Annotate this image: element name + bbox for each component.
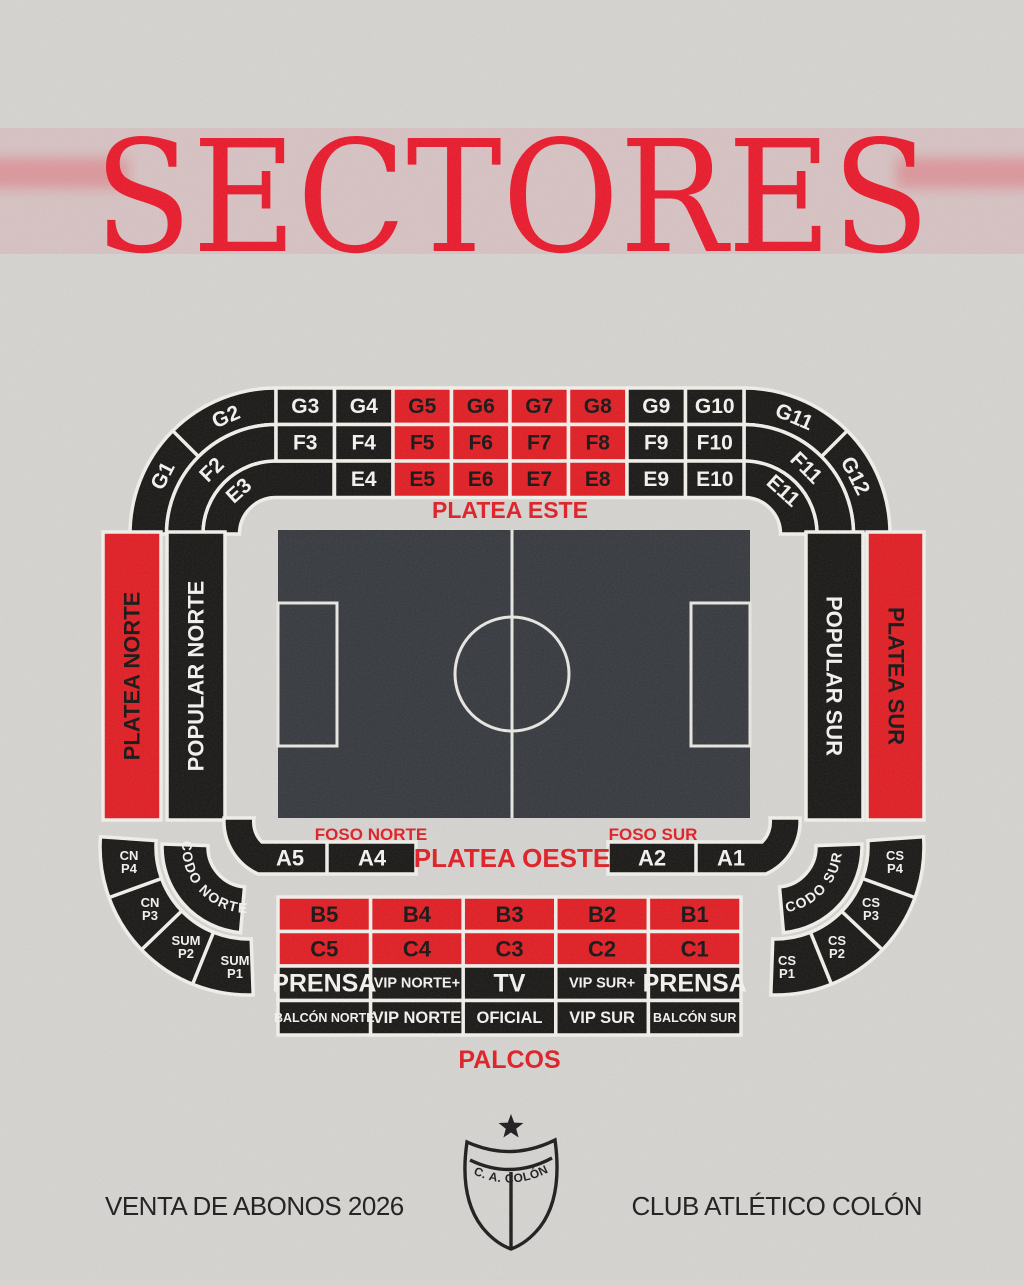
- pitch-turf: [278, 530, 750, 818]
- label-B5: B5: [310, 902, 338, 927]
- label-platea-oeste: PLATEA OESTE: [414, 843, 610, 873]
- label-cs-p1-2: P1: [779, 966, 795, 981]
- label-A5: A5: [276, 846, 304, 871]
- label-cs-p2-2: P2: [829, 946, 845, 961]
- label-E5: E5: [409, 468, 435, 491]
- label-cs-p3-2: P3: [863, 908, 879, 923]
- label-B3: B3: [495, 902, 523, 927]
- label-G4: G4: [350, 395, 378, 418]
- label-F6: F6: [468, 431, 493, 454]
- label-E7: E7: [526, 468, 552, 491]
- label-foso-norte: FOSO NORTE: [315, 825, 427, 844]
- page-title: SECTORES: [94, 107, 930, 288]
- label-G7: G7: [525, 395, 553, 418]
- label-G5: G5: [408, 395, 436, 418]
- footer-left: VENTA DE ABONOS 2026: [105, 1191, 404, 1221]
- label-A4: A4: [358, 846, 387, 871]
- label-prensa-sur: PRENSA: [643, 969, 747, 997]
- label-vip-sur: VIP SUR: [569, 1009, 635, 1027]
- label-cs-p4-2: P4: [887, 861, 904, 876]
- label-platea-sur: PLATEA SUR: [884, 607, 909, 745]
- label-platea-este: PLATEA ESTE: [432, 497, 588, 523]
- footer-right: CLUB ATLÉTICO COLÓN: [631, 1191, 922, 1221]
- label-A2: A2: [638, 846, 666, 871]
- label-prensa-norte: PRENSA: [272, 969, 376, 997]
- label-E6: E6: [468, 468, 494, 491]
- label-F9: F9: [644, 431, 669, 454]
- label-G6: G6: [467, 395, 495, 418]
- label-F8: F8: [585, 431, 610, 454]
- label-popular-norte: POPULAR NORTE: [184, 581, 209, 772]
- label-sum-p1-2: P1: [227, 966, 243, 981]
- label-G8: G8: [584, 395, 612, 418]
- label-G9: G9: [642, 395, 670, 418]
- label-vip-norte: VIP NORTE: [373, 1009, 462, 1027]
- label-E8: E8: [585, 468, 611, 491]
- label-palcos: PALCOS: [458, 1046, 560, 1074]
- sectores-poster: SECTORES: [0, 0, 1024, 1280]
- label-C2: C2: [588, 936, 616, 961]
- label-foso-sur: FOSO SUR: [609, 825, 698, 844]
- label-C5: C5: [310, 936, 338, 961]
- label-F7: F7: [527, 431, 552, 454]
- label-platea-norte: PLATEA NORTE: [120, 592, 145, 761]
- label-F3: F3: [293, 431, 318, 454]
- label-popular-sur: POPULAR SUR: [822, 596, 847, 756]
- label-C1: C1: [681, 936, 709, 961]
- label-balcon-sur: BALCÓN SUR: [653, 1010, 736, 1025]
- label-tv: TV: [494, 969, 526, 997]
- label-A1: A1: [717, 846, 745, 871]
- label-sum-p2-2: P2: [178, 946, 194, 961]
- label-B2: B2: [588, 902, 616, 927]
- label-F4: F4: [351, 431, 376, 454]
- label-vip-norte-plus: VIP NORTE+: [374, 975, 460, 991]
- label-B4: B4: [403, 902, 432, 927]
- label-F5: F5: [410, 431, 435, 454]
- label-oficial: OFICIAL: [477, 1009, 543, 1027]
- label-G3: G3: [291, 395, 319, 418]
- football-pitch: [278, 530, 750, 818]
- label-vip-sur-plus: VIP SUR+: [569, 975, 635, 991]
- label-E10: E10: [696, 468, 733, 491]
- label-cn-p4-2: P4: [121, 861, 138, 876]
- label-cn-p3-2: P3: [142, 908, 158, 923]
- label-E9: E9: [643, 468, 669, 491]
- label-E4: E4: [351, 468, 377, 491]
- label-G10: G10: [695, 395, 735, 418]
- label-balcon-norte: BALCÓN NORTE: [274, 1010, 375, 1025]
- label-B1: B1: [681, 902, 709, 927]
- label-C4: C4: [403, 936, 432, 961]
- label-F10: F10: [697, 431, 733, 454]
- label-C3: C3: [495, 936, 523, 961]
